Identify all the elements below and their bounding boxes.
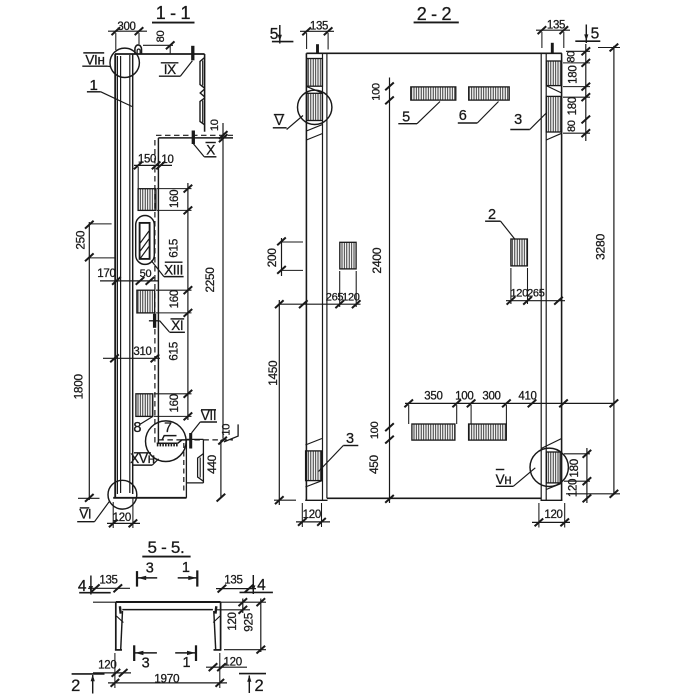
svg-text:2: 2 <box>71 677 80 695</box>
svg-text:120: 120 <box>98 660 116 672</box>
svg-text:Vн: Vн <box>496 472 512 487</box>
svg-text:VIн: VIн <box>85 52 104 67</box>
svg-text:3: 3 <box>146 560 154 576</box>
svg-text:10: 10 <box>221 424 233 436</box>
svg-text:5: 5 <box>591 26 599 43</box>
svg-text:2 - 2: 2 - 2 <box>417 4 452 24</box>
svg-text:120: 120 <box>568 479 580 497</box>
svg-text:IX: IX <box>164 62 176 77</box>
svg-text:1: 1 <box>182 560 190 576</box>
svg-text:350: 350 <box>424 390 442 402</box>
svg-text:5: 5 <box>270 26 278 43</box>
svg-text:160: 160 <box>169 190 181 208</box>
svg-text:50: 50 <box>140 268 152 280</box>
svg-text:135: 135 <box>224 574 242 586</box>
svg-text:925: 925 <box>241 612 255 632</box>
svg-text:200: 200 <box>265 248 279 268</box>
svg-text:100: 100 <box>369 421 381 439</box>
svg-text:120: 120 <box>227 612 239 630</box>
svg-text:80: 80 <box>566 51 578 63</box>
svg-text:2250: 2250 <box>203 267 217 293</box>
svg-text:80: 80 <box>566 120 578 132</box>
svg-text:10: 10 <box>209 119 221 131</box>
svg-text:3: 3 <box>346 431 354 447</box>
svg-text:120: 120 <box>342 292 360 304</box>
svg-text:100: 100 <box>371 83 383 101</box>
svg-text:1800: 1800 <box>71 374 85 400</box>
svg-text:3: 3 <box>142 655 150 671</box>
svg-text:180: 180 <box>569 459 581 477</box>
svg-text:615: 615 <box>166 341 180 361</box>
svg-text:3: 3 <box>514 112 522 128</box>
svg-text:7: 7 <box>164 419 172 435</box>
svg-text:V: V <box>275 113 284 128</box>
svg-text:XVн: XVн <box>130 451 155 466</box>
svg-text:2400: 2400 <box>370 247 384 273</box>
svg-text:80: 80 <box>155 31 167 43</box>
svg-text:1 - 1: 1 - 1 <box>156 3 191 23</box>
svg-text:5 - 5.: 5 - 5. <box>148 538 185 557</box>
svg-text:310: 310 <box>133 346 151 358</box>
svg-text:6: 6 <box>459 108 467 124</box>
svg-text:VII: VII <box>201 408 217 423</box>
svg-text:X: X <box>206 143 215 158</box>
svg-text:1: 1 <box>183 655 191 671</box>
svg-text:300: 300 <box>482 390 500 402</box>
svg-text:XI: XI <box>171 318 183 333</box>
svg-text:VI: VI <box>79 507 91 522</box>
svg-text:170: 170 <box>97 268 115 280</box>
svg-text:2: 2 <box>255 677 264 695</box>
svg-text:450: 450 <box>367 454 381 474</box>
svg-text:135: 135 <box>99 575 117 587</box>
svg-text:250: 250 <box>73 230 87 250</box>
svg-text:440: 440 <box>205 454 219 474</box>
svg-text:120: 120 <box>544 509 562 521</box>
svg-text:XIII: XIII <box>164 263 183 278</box>
svg-text:120: 120 <box>510 288 528 300</box>
svg-text:265: 265 <box>326 291 344 303</box>
svg-text:615: 615 <box>166 238 180 258</box>
svg-text:1450: 1450 <box>266 360 280 386</box>
svg-text:100: 100 <box>455 390 473 402</box>
svg-text:180: 180 <box>568 66 580 84</box>
svg-text:4: 4 <box>257 577 266 594</box>
svg-text:180: 180 <box>567 97 579 115</box>
svg-text:3280: 3280 <box>593 234 607 260</box>
svg-text:160: 160 <box>169 394 181 412</box>
svg-text:410: 410 <box>518 390 536 402</box>
svg-text:8: 8 <box>133 420 141 436</box>
svg-text:135: 135 <box>310 21 328 33</box>
svg-text:160: 160 <box>169 290 181 308</box>
svg-text:265: 265 <box>527 288 545 300</box>
